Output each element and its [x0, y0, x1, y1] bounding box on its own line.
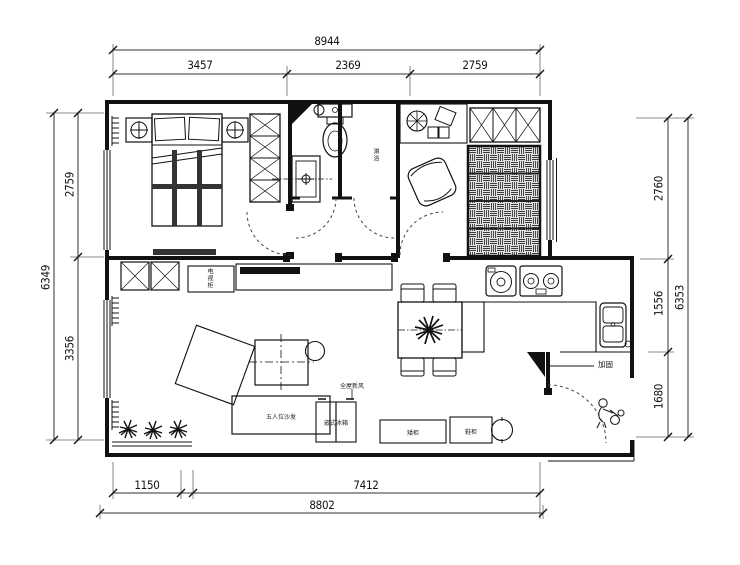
rug — [175, 325, 254, 404]
dimension-extension-lines — [46, 44, 694, 519]
counter-peninsula — [462, 302, 484, 352]
window-left-living — [104, 300, 110, 398]
dining-area — [398, 284, 462, 376]
corner-shower — [292, 104, 312, 124]
washing-machine — [486, 266, 516, 296]
dim-right-overall: 6353 — [674, 271, 687, 325]
gas-stove — [520, 266, 562, 296]
bedroom-wardrobe — [250, 114, 280, 202]
storage-cabinets — [121, 262, 179, 290]
door-swing-arcs — [247, 198, 606, 443]
tatami-bed — [468, 146, 540, 256]
tv-cabinet-label: 电视柜 — [205, 268, 214, 291]
entry-figure — [597, 399, 624, 428]
dim-bottom-seg-2: 7412 — [339, 479, 393, 492]
dim-right-seg-2: 1556 — [653, 277, 666, 331]
plants — [119, 420, 187, 439]
double-bed — [152, 114, 222, 226]
reinforce-label: 加固 — [598, 359, 628, 370]
low-cabinet-label: 矮柜 — [391, 428, 435, 437]
entry-stool — [492, 417, 513, 443]
landing-lines — [548, 440, 634, 461]
shower-room-label: 淋浴 — [371, 148, 380, 174]
radiator-symbols — [112, 116, 119, 430]
window-bottom-left — [112, 442, 192, 446]
dim-bottom-overall: 8802 — [295, 499, 349, 512]
floor-plan-canvas: 8944 3457 2369 2759 6349 2759 3356 2760 … — [0, 0, 740, 565]
bedroom-door-arc — [247, 212, 290, 255]
dim-bottom-seg-1: 1150 — [120, 479, 174, 492]
study-room — [400, 104, 540, 256]
nightstand-right — [222, 118, 248, 142]
study-door-arc — [400, 212, 443, 255]
study-wardrobe — [470, 108, 540, 142]
nightstand-left — [126, 118, 152, 142]
counter-edge — [484, 302, 632, 352]
dim-right-seg-1: 2760 — [653, 162, 666, 216]
window-left-bedroom — [104, 150, 110, 250]
entry-door-arc — [548, 385, 606, 443]
bedroom-bench — [153, 249, 216, 255]
whole-house-note: 全屋新风 — [330, 381, 374, 390]
armchair — [406, 156, 459, 209]
coffee-table — [249, 334, 314, 391]
sofa-label: 五人位沙发 — [246, 412, 316, 421]
dim-top-overall: 8944 — [300, 35, 354, 48]
dim-top-seg-1: 3457 — [173, 59, 227, 72]
desk-chair — [407, 111, 427, 131]
desk — [400, 104, 467, 143]
laptop — [435, 107, 456, 126]
dim-left-overall: 6349 — [40, 251, 53, 305]
dim-left-seg-2: 3356 — [64, 322, 77, 376]
desk-box-2 — [439, 127, 449, 138]
shower-tray — [272, 156, 332, 202]
dim-top-seg-3: 2759 — [448, 59, 502, 72]
fridge-label: 嵌式冰箱 — [314, 418, 358, 427]
reinforce-triangle — [527, 352, 545, 377]
dim-top-seg-2: 2369 — [321, 59, 375, 72]
kitchen — [462, 266, 632, 352]
kitchen-sink — [600, 303, 631, 347]
shoe-cabinet-label: 鞋柜 — [449, 427, 493, 436]
tv — [240, 267, 300, 274]
master-bedroom — [126, 114, 280, 255]
dim-right-seg-3: 1680 — [653, 370, 666, 424]
shower-room-door-arc — [354, 198, 394, 238]
window-right-study — [547, 158, 557, 242]
bathroom-door-arc — [296, 198, 336, 238]
dim-left-seg-1: 2759 — [64, 158, 77, 212]
desk-box-1 — [428, 127, 438, 138]
